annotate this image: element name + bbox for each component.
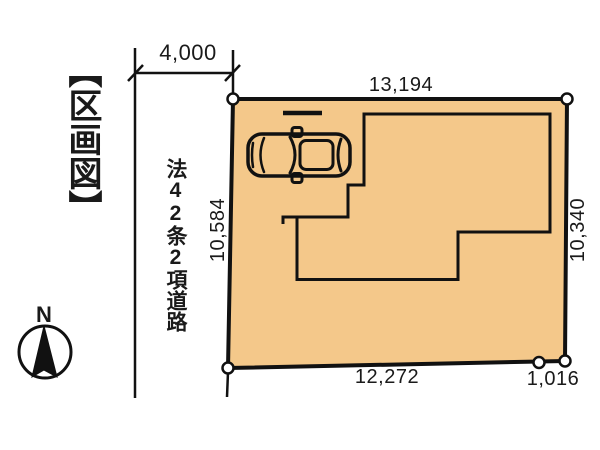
survey-point-top-right xyxy=(562,94,573,105)
dimension-bottom-right: 1,016 xyxy=(518,368,588,391)
road-right-edge-line-lower xyxy=(227,372,228,397)
survey-point-bottom-left xyxy=(223,363,234,374)
dimension-left: 10,584 xyxy=(207,190,229,270)
dimension-bottom: 12,272 xyxy=(337,366,437,389)
survey-point-bottom-mid xyxy=(534,357,545,368)
page-title: 【区画図】 xyxy=(62,54,102,224)
dimension-right: 10,340 xyxy=(567,190,589,270)
north-compass-icon xyxy=(19,326,71,378)
dimension-road-width: 4,000 xyxy=(138,40,238,66)
survey-point-top-left xyxy=(228,94,239,105)
compass-north-label: N xyxy=(29,302,59,328)
dimension-top: 13,194 xyxy=(351,74,451,97)
survey-point-bottom-right xyxy=(560,356,571,367)
road-type-label: 法42条2項道路 xyxy=(164,158,186,332)
plot-plan-diagram: 【区画図】 法42条2項道路 4,000 13,194 10,584 10,34… xyxy=(0,0,600,450)
car-bumper-line xyxy=(252,143,253,167)
